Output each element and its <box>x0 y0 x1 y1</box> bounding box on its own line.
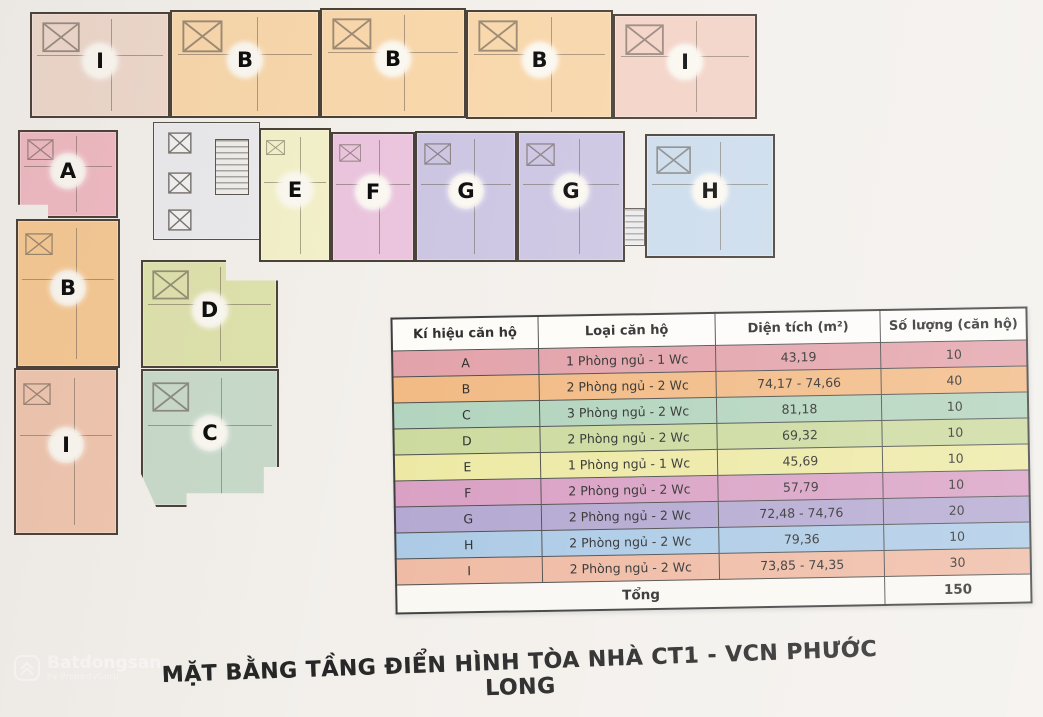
cell-type: 2 Phòng ngủ - 2 Wc <box>541 527 719 556</box>
cell-qty: 10 <box>882 418 1028 447</box>
apartment-table-body: A1 Phòng ngủ - 1 Wc43,1910B2 Phòng ngủ -… <box>392 340 1031 585</box>
cell-area: 74,17 - 74,66 <box>716 369 882 398</box>
elevator-icon <box>162 132 198 154</box>
bed-icon <box>625 24 664 55</box>
cell-type: 2 Phòng ngủ - 2 Wc <box>539 423 717 452</box>
bed-icon <box>526 143 555 166</box>
cell-qty: 10 <box>881 340 1027 369</box>
unit-I-4: I <box>613 14 757 119</box>
unit-badge-D: D <box>192 292 228 328</box>
bed-icon <box>266 140 285 155</box>
unit-F-8: F <box>331 132 415 262</box>
unit-badge-B: B <box>375 41 411 77</box>
elevator-icon <box>162 209 198 231</box>
cell-code: F <box>394 478 540 507</box>
cell-code: C <box>393 401 539 430</box>
cell-qty: 10 <box>884 522 1030 551</box>
total-qty: 150 <box>885 574 1032 605</box>
cell-type: 2 Phòng ngủ - 2 Wc <box>542 553 720 582</box>
cell-qty: 10 <box>883 444 1029 473</box>
unit-H-12: H <box>645 134 775 258</box>
cell-qty: 40 <box>881 366 1027 395</box>
cell-type: 2 Phòng ngủ - 2 Wc <box>539 371 717 400</box>
bed-icon <box>478 20 518 52</box>
cell-code: A <box>392 349 538 378</box>
bed-icon <box>424 143 451 165</box>
unit-A-5: A <box>18 130 118 218</box>
unit-G-10: G <box>517 131 625 262</box>
brochure-photo: IBBBIAEFGGHBIDC Kí hiệu căn hộ Loại căn … <box>0 0 1043 717</box>
unit-badge-I: I <box>667 44 703 80</box>
unit-badge-C: C <box>192 415 228 451</box>
unit-badge-H: H <box>692 173 728 209</box>
unit-badge-I: I <box>82 43 118 79</box>
cell-area: 81,18 <box>717 395 883 424</box>
cell-type: 3 Phòng ngủ - 2 Wc <box>539 397 717 426</box>
unit-B-3: B <box>466 10 613 119</box>
unit-badge-I: I <box>48 427 84 463</box>
unit-badge-B: B <box>227 42 263 78</box>
bed-icon <box>339 144 361 162</box>
staircase <box>215 139 249 194</box>
cell-area: 69,32 <box>717 421 883 450</box>
unit-badge-B: B <box>522 42 558 78</box>
unit-G-9: G <box>415 131 517 262</box>
cell-code: B <box>392 375 538 404</box>
unit-C-16: C <box>141 369 279 507</box>
cell-qty: 10 <box>883 470 1029 499</box>
col-header-code: Kí hiệu căn hộ <box>391 316 538 351</box>
cell-code: H <box>395 530 541 559</box>
cell-area: 79,36 <box>719 524 885 553</box>
unit-B-2: B <box>320 8 466 118</box>
unit-badge-E: E <box>277 172 313 208</box>
bed-icon <box>332 18 372 50</box>
bed-icon <box>42 22 80 52</box>
core-block <box>153 122 260 240</box>
bed-icon <box>152 270 189 300</box>
bed-icon <box>656 146 691 174</box>
cell-qty: 30 <box>885 548 1031 577</box>
bed-icon <box>152 382 190 412</box>
unit-badge-G: G <box>553 173 589 209</box>
unit-B-1: B <box>170 10 320 118</box>
unit-I-14: I <box>14 368 118 535</box>
cell-area: 45,69 <box>718 447 884 476</box>
cell-qty: 10 <box>882 392 1028 421</box>
col-header-type: Loại căn hộ <box>537 313 715 349</box>
bed-icon <box>27 139 54 161</box>
cell-type: 1 Phòng ngủ - 1 Wc <box>538 345 716 374</box>
elevator-icon <box>162 172 198 194</box>
cell-area: 72,48 - 74,76 <box>719 499 885 528</box>
unit-badge-A: A <box>50 153 86 189</box>
cell-area: 73,85 - 74,35 <box>719 550 885 579</box>
col-header-area: Diện tích (m²) <box>715 310 881 345</box>
cell-code: D <box>393 426 539 455</box>
cell-code: G <box>395 504 541 533</box>
cell-area: 43,19 <box>716 343 882 372</box>
col-header-qty: Số lượng (căn hộ) <box>880 307 1027 342</box>
cell-code: I <box>396 556 542 585</box>
stairs-block <box>624 208 645 246</box>
apartment-table: Kí hiệu căn hộ Loại căn hộ Diện tích (m²… <box>390 306 1032 614</box>
unit-badge-G: G <box>448 173 484 209</box>
cell-type: 1 Phòng ngủ - 1 Wc <box>540 449 718 478</box>
unit-badge-F: F <box>355 174 391 210</box>
unit-E-7: E <box>259 128 331 262</box>
cell-code: E <box>394 452 540 481</box>
cell-qty: 20 <box>884 496 1030 525</box>
unit-I-0: I <box>30 12 170 118</box>
bed-icon <box>182 20 223 53</box>
unit-D-15: D <box>141 260 278 368</box>
bed-icon <box>25 233 53 255</box>
cell-type: 2 Phòng ngủ - 2 Wc <box>540 475 718 504</box>
bed-icon <box>23 383 51 405</box>
cell-area: 57,79 <box>718 473 884 502</box>
cell-type: 2 Phòng ngủ - 2 Wc <box>541 501 719 530</box>
unit-B-13: B <box>16 219 120 368</box>
unit-badge-B: B <box>50 270 86 306</box>
